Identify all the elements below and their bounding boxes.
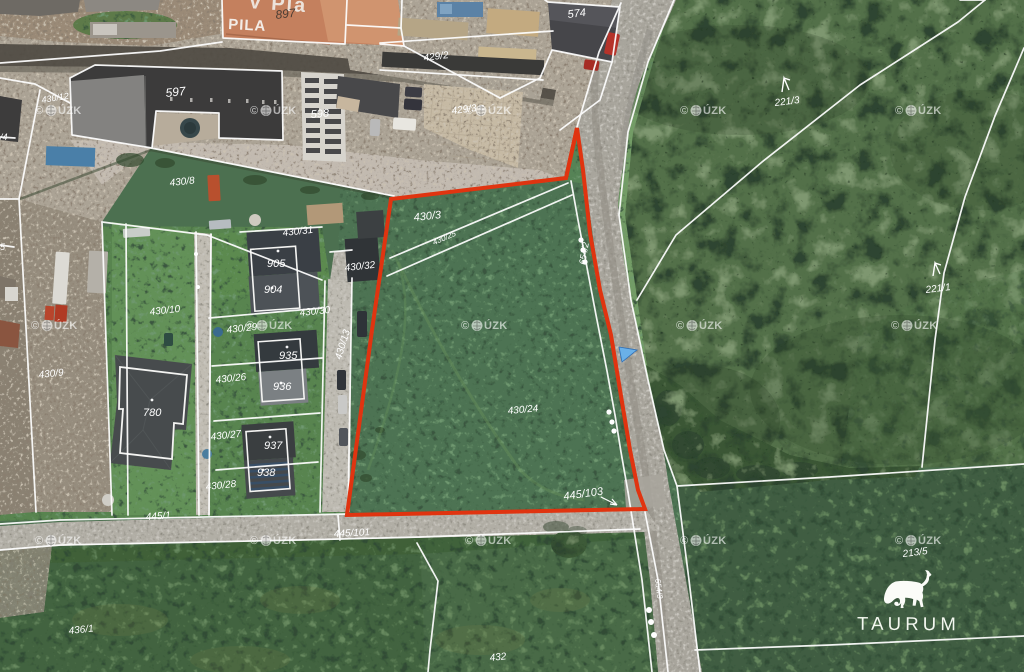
svg-text:938: 938 bbox=[257, 467, 276, 479]
svg-text:904: 904 bbox=[264, 284, 282, 296]
svg-text:445/1: 445/1 bbox=[145, 510, 171, 523]
svg-text:937: 937 bbox=[264, 440, 283, 452]
svg-text:936: 936 bbox=[273, 381, 292, 393]
svg-text:445/101: 445/101 bbox=[334, 527, 371, 540]
svg-text:/4: /4 bbox=[0, 132, 8, 142]
svg-text:935: 935 bbox=[279, 350, 298, 362]
svg-text:432: 432 bbox=[489, 651, 507, 664]
svg-text:897: 897 bbox=[275, 5, 298, 21]
svg-text:597: 597 bbox=[165, 84, 188, 100]
svg-text:780: 780 bbox=[143, 407, 162, 419]
svg-text:TAURUM: TAURUM bbox=[857, 613, 960, 635]
svg-text:ÚZK: ÚZK bbox=[58, 104, 82, 117]
svg-text:905: 905 bbox=[267, 258, 286, 270]
svg-text:PILA: PILA bbox=[228, 16, 267, 35]
svg-text:598: 598 bbox=[310, 107, 330, 121]
svg-text:©: © bbox=[35, 105, 43, 117]
svg-text:574: 574 bbox=[567, 7, 587, 21]
